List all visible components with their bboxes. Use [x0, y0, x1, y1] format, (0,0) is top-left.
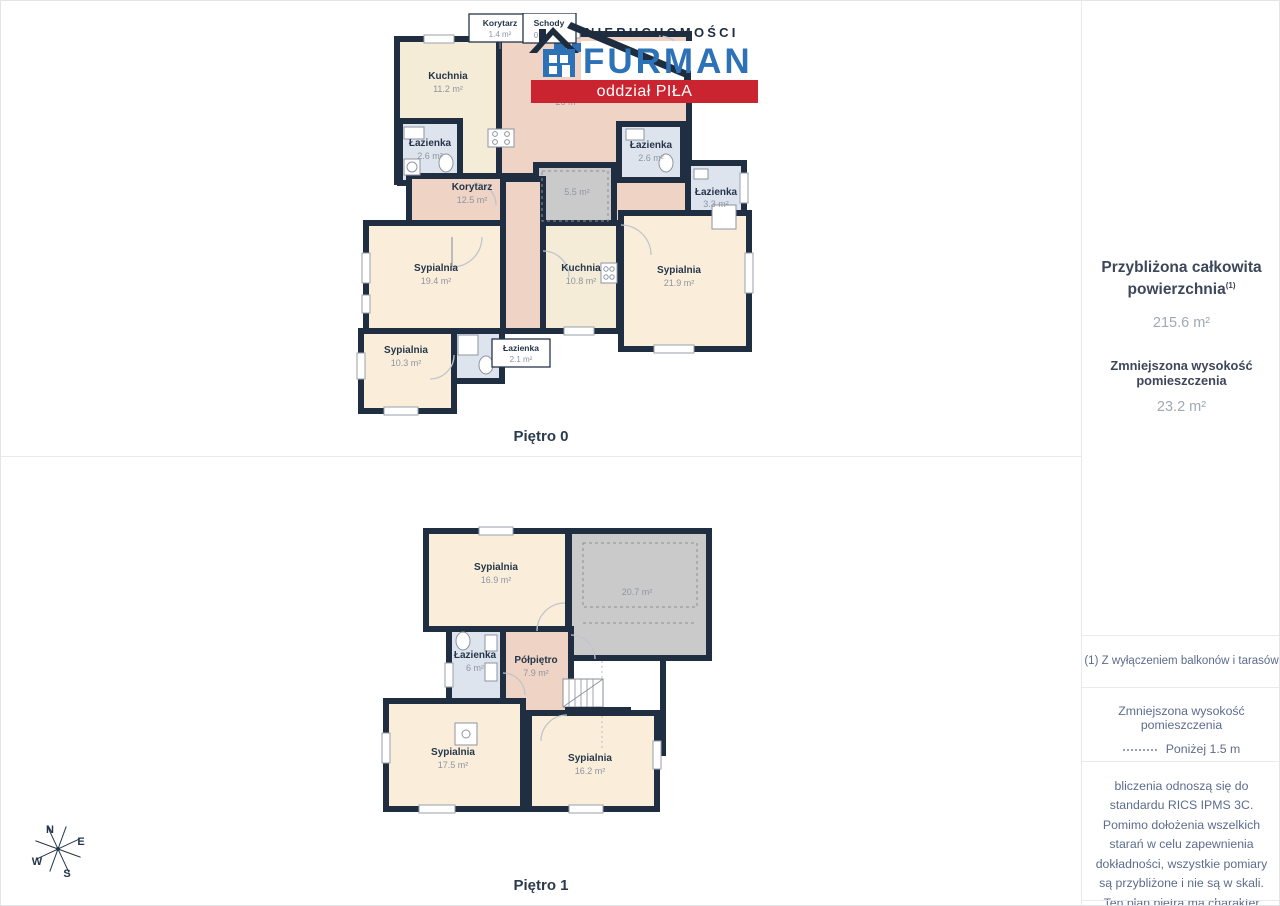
floor1-label: Piętro 1 — [1, 877, 1081, 894]
svg-text:2.1 m²: 2.1 m² — [510, 355, 533, 364]
label-lazienka1: Łazienka — [454, 650, 497, 661]
svg-text:21.9 m²: 21.9 m² — [664, 278, 695, 288]
svg-text:W: W — [32, 856, 43, 868]
label-attic: 20.7 m² — [622, 587, 653, 597]
label-sypialnia-b1: Sypialnia — [431, 747, 475, 758]
svg-text:6 m²: 6 m² — [466, 663, 484, 673]
callout-lazienka-d: Łazienka 2.1 m² — [492, 339, 550, 367]
disclaimer-block: bliczenia odnoszą się do standardu RICS … — [1082, 761, 1280, 906]
label-sypialnia-a: Sypialnia — [414, 263, 458, 274]
svg-text:1.4 m²: 1.4 m² — [489, 30, 512, 39]
label-sypialnia-b: Sypialnia — [657, 265, 701, 276]
legend-value: Poniżej 1.5 m — [1082, 742, 1280, 756]
label-korytarz: Korytarz — [452, 182, 493, 193]
label-sypialnia-c1: Sypialnia — [568, 753, 612, 764]
svg-text:19.4 m²: 19.4 m² — [421, 276, 452, 286]
logo-banner: oddział PIŁA — [531, 80, 758, 103]
label-lazienka-c: Łazienka — [695, 187, 738, 198]
svg-text:11.2 m²: 11.2 m² — [433, 84, 463, 94]
sidebar: Przybliżona całkowita powierzchnia(1) 21… — [1082, 1, 1280, 906]
room-sypialnia-c — [361, 331, 454, 411]
dashed-line-sample — [1123, 749, 1157, 751]
label-lazienka-a: Łazienka — [409, 138, 452, 149]
svg-text:16.2 m²: 16.2 m² — [575, 766, 606, 776]
svg-text:2.6 m²: 2.6 m² — [638, 153, 664, 163]
svg-text:S: S — [63, 868, 70, 880]
legend-title: Zmniejszona wysokość pomieszczenia — [1082, 704, 1280, 732]
reduced-height-title: Zmniejszona wysokość pomieszczenia — [1082, 358, 1280, 388]
label-sypialnia-a1: Sypialnia — [474, 562, 518, 573]
svg-text:3.3 m²: 3.3 m² — [703, 199, 729, 209]
svg-text:10.8 m²: 10.8 m² — [566, 276, 597, 286]
floors-divider — [1, 456, 1082, 457]
svg-text:16.9 m²: 16.9 m² — [481, 575, 512, 585]
svg-text:17.5 m²: 17.5 m² — [438, 760, 469, 770]
svg-text:7.9 m²: 7.9 m² — [523, 668, 549, 678]
floorplan-page: Korytarz 1.4 m² Schody 0 Łazienka 2.1 m²… — [0, 0, 1280, 906]
legend: Zmniejszona wysokość pomieszczenia Poniż… — [1082, 687, 1280, 761]
svg-text:E: E — [77, 836, 84, 848]
corridor-strip — [503, 179, 543, 331]
furman-logo: NIERUCHOMOŚCI FURMAN — [529, 19, 761, 81]
floorplan-floor1: Sypialnia 16.9 m² 20.7 m² Łazienka 6 m² … — [379, 523, 719, 818]
house-icon — [529, 27, 579, 77]
total-area-title: Przybliżona całkowita powierzchnia(1) — [1082, 257, 1280, 302]
logo-brand-main: FURMAN — [583, 42, 753, 81]
compass-icon: N E W S — [19, 811, 99, 889]
label-sypialnia-c: Sypialnia — [384, 345, 428, 356]
svg-text:10.3 m²: 10.3 m² — [391, 358, 422, 368]
floor0-label: Piętro 0 — [1, 428, 1081, 445]
footnote: (1) Z wyłączeniem balkonów i tarasów — [1082, 635, 1280, 687]
label-lazienka-b: Łazienka — [630, 140, 673, 151]
label-kuchnia-b: Kuchnia — [561, 263, 601, 274]
area-summary: Przybliżona całkowita powierzchnia(1) 21… — [1082, 257, 1280, 415]
reduced-height-value: 23.2 m² — [1082, 399, 1280, 415]
label-polpietro: Półpiętro — [514, 655, 557, 666]
label-kuchnia-a: Kuchnia — [428, 71, 468, 82]
logo-brand-top: NIERUCHOMOŚCI — [585, 25, 739, 40]
label-room55: 5.5 m² — [564, 187, 590, 197]
svg-text:12.5 m²: 12.5 m² — [457, 195, 488, 205]
svg-text:2.6 m²: 2.6 m² — [417, 151, 443, 161]
svg-text:N: N — [46, 824, 54, 836]
svg-text:Łazienka: Łazienka — [503, 343, 539, 353]
total-area-value: 215.6 m² — [1082, 315, 1280, 331]
svg-text:Korytarz: Korytarz — [483, 18, 517, 28]
disclaimer-text: bliczenia odnoszą się do standardu RICS … — [1082, 761, 1280, 906]
